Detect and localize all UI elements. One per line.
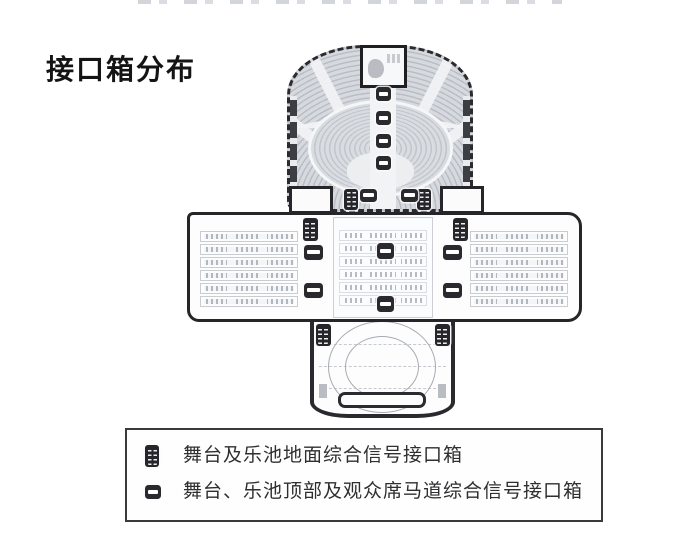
forestage-orchestra-pit bbox=[310, 322, 455, 418]
side-stage-row bbox=[470, 231, 568, 242]
side-stage-row bbox=[200, 244, 298, 255]
legend-item-overhead-boxes: 舞台、乐池顶部及观众席马道综合信号接口箱 bbox=[145, 479, 583, 506]
control-booth bbox=[360, 45, 407, 88]
proscenium-right-room bbox=[440, 186, 484, 214]
side-stage-row bbox=[200, 283, 298, 294]
proscenium-left-room bbox=[289, 186, 333, 214]
pit-mark bbox=[438, 384, 446, 398]
legend-label: 舞台及乐池地面综合信号接口箱 bbox=[183, 443, 463, 470]
main-stage-row bbox=[339, 282, 427, 293]
side-stage-row bbox=[470, 257, 568, 268]
legend-item-floor-boxes: 舞台及乐池地面综合信号接口箱 bbox=[145, 443, 463, 470]
side-stage-row bbox=[470, 296, 568, 307]
page: 接口箱分布 bbox=[0, 0, 692, 553]
overhead-interface-box-icon bbox=[145, 485, 161, 499]
side-stage-row bbox=[470, 270, 568, 281]
main-stage-row bbox=[339, 269, 427, 280]
revolving-stage-inner-ring bbox=[345, 336, 419, 398]
side-stage-row bbox=[200, 257, 298, 268]
side-stage-row bbox=[200, 296, 298, 307]
main-stage-row bbox=[339, 243, 427, 254]
stage-area bbox=[187, 212, 582, 322]
side-stage-row bbox=[200, 270, 298, 281]
side-stage-row bbox=[470, 283, 568, 294]
pit-front-trough bbox=[338, 392, 426, 408]
main-stage-row bbox=[339, 256, 427, 267]
floor-interface-box-icon bbox=[145, 445, 159, 467]
side-stage-row bbox=[200, 231, 298, 242]
main-stage-row bbox=[339, 230, 427, 241]
legend-label: 舞台、乐池顶部及观众席马道综合信号接口箱 bbox=[183, 479, 583, 506]
pit-mark bbox=[319, 384, 327, 398]
main-stage-row bbox=[339, 295, 427, 306]
legend: 舞台及乐池地面综合信号接口箱 舞台、乐池顶部及观众席马道综合信号接口箱 bbox=[125, 428, 603, 522]
main-stage bbox=[333, 217, 433, 318]
center-aisle bbox=[370, 88, 396, 209]
side-stage-row bbox=[470, 244, 568, 255]
